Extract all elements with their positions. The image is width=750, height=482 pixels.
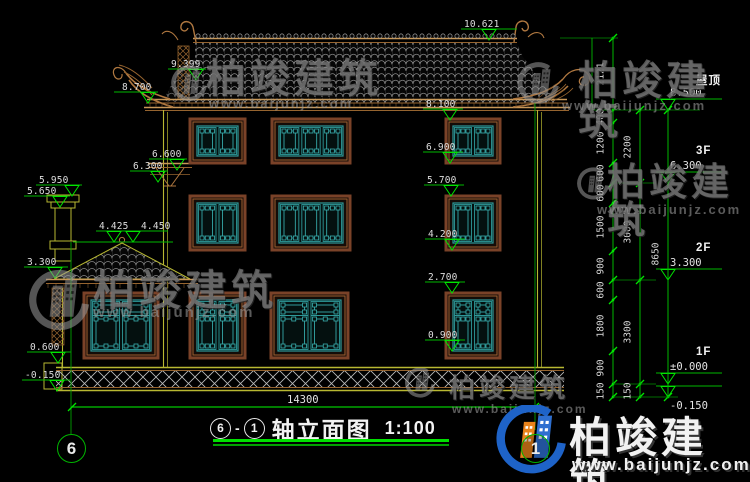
elevation-label-left: 5.950 xyxy=(39,175,69,186)
elevation-label-mid: 4.200 xyxy=(428,229,458,240)
title-underline-thin xyxy=(213,444,449,446)
watermark-url: www.baijunjz.com xyxy=(572,456,750,473)
baijun-logo-icon xyxy=(170,57,208,113)
elevation-label-left: 6.300 xyxy=(133,161,163,172)
baijun-logo-icon xyxy=(394,368,446,400)
floor-name-label: 3F xyxy=(696,145,711,157)
elevation-label-mid: 2.700 xyxy=(428,272,458,283)
lattice-window xyxy=(190,119,245,163)
watermark-text: 柏竣建筑 xyxy=(206,59,382,99)
dimension-value: 8650 xyxy=(651,242,662,265)
title-dash: - xyxy=(235,420,240,436)
watermark-url: www.baijunjz.com xyxy=(93,305,254,320)
lattice-window xyxy=(190,196,245,250)
floor-elevation-label: -0.150 xyxy=(670,400,708,412)
baijun-logo-icon xyxy=(27,263,91,343)
watermark-logo xyxy=(170,57,208,113)
title-axis-start-circle: 6 xyxy=(210,418,231,439)
watermark-url: www.baijunjz.com xyxy=(562,99,706,112)
watermark-text: 柏竣建筑 xyxy=(449,375,569,401)
dimension-value: 150 xyxy=(596,382,607,399)
watermark-url: www.baijunjz.com xyxy=(209,97,353,110)
watermark-logo xyxy=(516,59,560,111)
watermark-logo xyxy=(27,263,91,343)
dimension-value: 1800 xyxy=(596,314,607,337)
elevation-label-left: 6.600 xyxy=(152,149,182,160)
lattice-window xyxy=(446,196,500,250)
elevation-label-mid: 5.700 xyxy=(427,175,457,186)
elevation-label-mid: 8.100 xyxy=(426,99,456,110)
dimension-value: 900 xyxy=(596,359,607,376)
elevation-label-mid: 0.900 xyxy=(428,330,458,341)
cad-elevation-drawing: 9.3998.7006.6006.3005.9505.6504.4254.450… xyxy=(0,0,750,482)
floor-name-label: 2F xyxy=(696,242,711,254)
dimension-value: 3300 xyxy=(623,321,634,344)
dimension-value: 900 xyxy=(596,257,607,274)
floor-elevation-label: 3.300 xyxy=(670,257,702,269)
overall-dimension-label: 14300 xyxy=(287,394,319,406)
watermark-url: www.baijunjz.com xyxy=(597,203,741,216)
lattice-window xyxy=(272,119,350,163)
lattice-window xyxy=(272,196,350,250)
title-scale: 1:100 xyxy=(385,418,436,439)
elevation-label-left: 4.425 xyxy=(99,221,129,232)
chimney xyxy=(47,195,79,261)
elevation-label-left: 8.700 xyxy=(122,82,152,93)
baijun-logo-icon xyxy=(516,59,560,111)
elevation-label-ridge: 10.621 xyxy=(464,19,500,30)
elevation-label-left: 5.650 xyxy=(27,186,57,197)
watermark-logo xyxy=(394,368,446,400)
elevation-label-left: 0.600 xyxy=(30,342,60,353)
dimension-value: 150 xyxy=(623,382,634,399)
axis-bubble-1: 1 xyxy=(521,434,550,463)
elevation-label-left: -0.150 xyxy=(25,370,61,381)
title-axis-end-circle: 1 xyxy=(244,418,265,439)
axis-bubble-6: 6 xyxy=(57,434,86,463)
lattice-window xyxy=(271,293,348,358)
floor-name-label: 1F xyxy=(696,346,711,358)
dimension-value: 1500 xyxy=(596,216,607,239)
floor-elevation-label: ±0.000 xyxy=(670,361,708,373)
title-underline-thick xyxy=(213,439,449,442)
elevation-label-mid: 6.900 xyxy=(426,142,456,153)
dimension-value: 600 xyxy=(596,281,607,298)
elevation-label-left: 4.450 xyxy=(141,221,171,232)
